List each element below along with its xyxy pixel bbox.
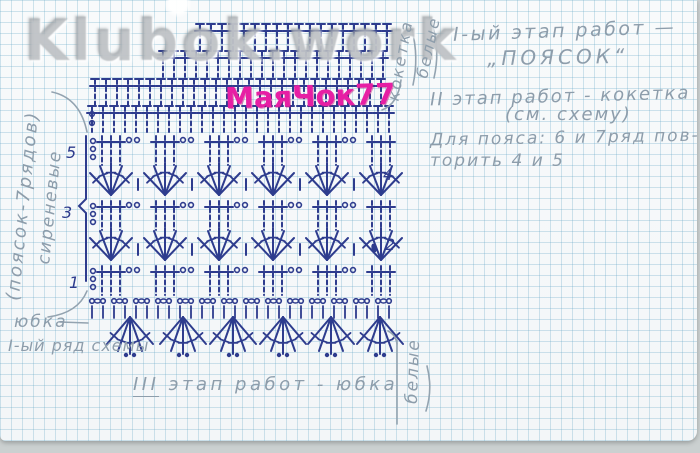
- note-stage2-see-scheme: (см. схему): [505, 104, 632, 125]
- note-stage1-name: „ПОЯСОК“: [487, 44, 629, 70]
- row-number-4: 4: [383, 165, 393, 184]
- stage3-numeral: III: [133, 374, 159, 397]
- graph-paper: 53142 Klubok.work МаяЧок77 (поясок-7рядо…: [0, 0, 697, 441]
- label-skirt: юбка: [14, 312, 67, 332]
- note-belt-repeat-2: торить 4 и 5: [430, 151, 565, 171]
- row-number-2: 2: [385, 235, 395, 254]
- note-stage3: III этап работ - юбка: [133, 374, 398, 395]
- brand-text: МаяЧок77: [225, 77, 396, 115]
- row-number-5: 5: [66, 143, 76, 162]
- label-white-bottom: белые: [401, 321, 424, 422]
- stage3-text: этап работ - юбка: [159, 374, 398, 395]
- label-skirt-first-row: I-ый ряд схемы: [8, 336, 149, 355]
- row-number-3: 3: [62, 203, 72, 222]
- photo-backdrop: { "watermark": "Klubok.work", "brand": "…: [0, 0, 700, 453]
- row-number-1: 1: [69, 273, 79, 292]
